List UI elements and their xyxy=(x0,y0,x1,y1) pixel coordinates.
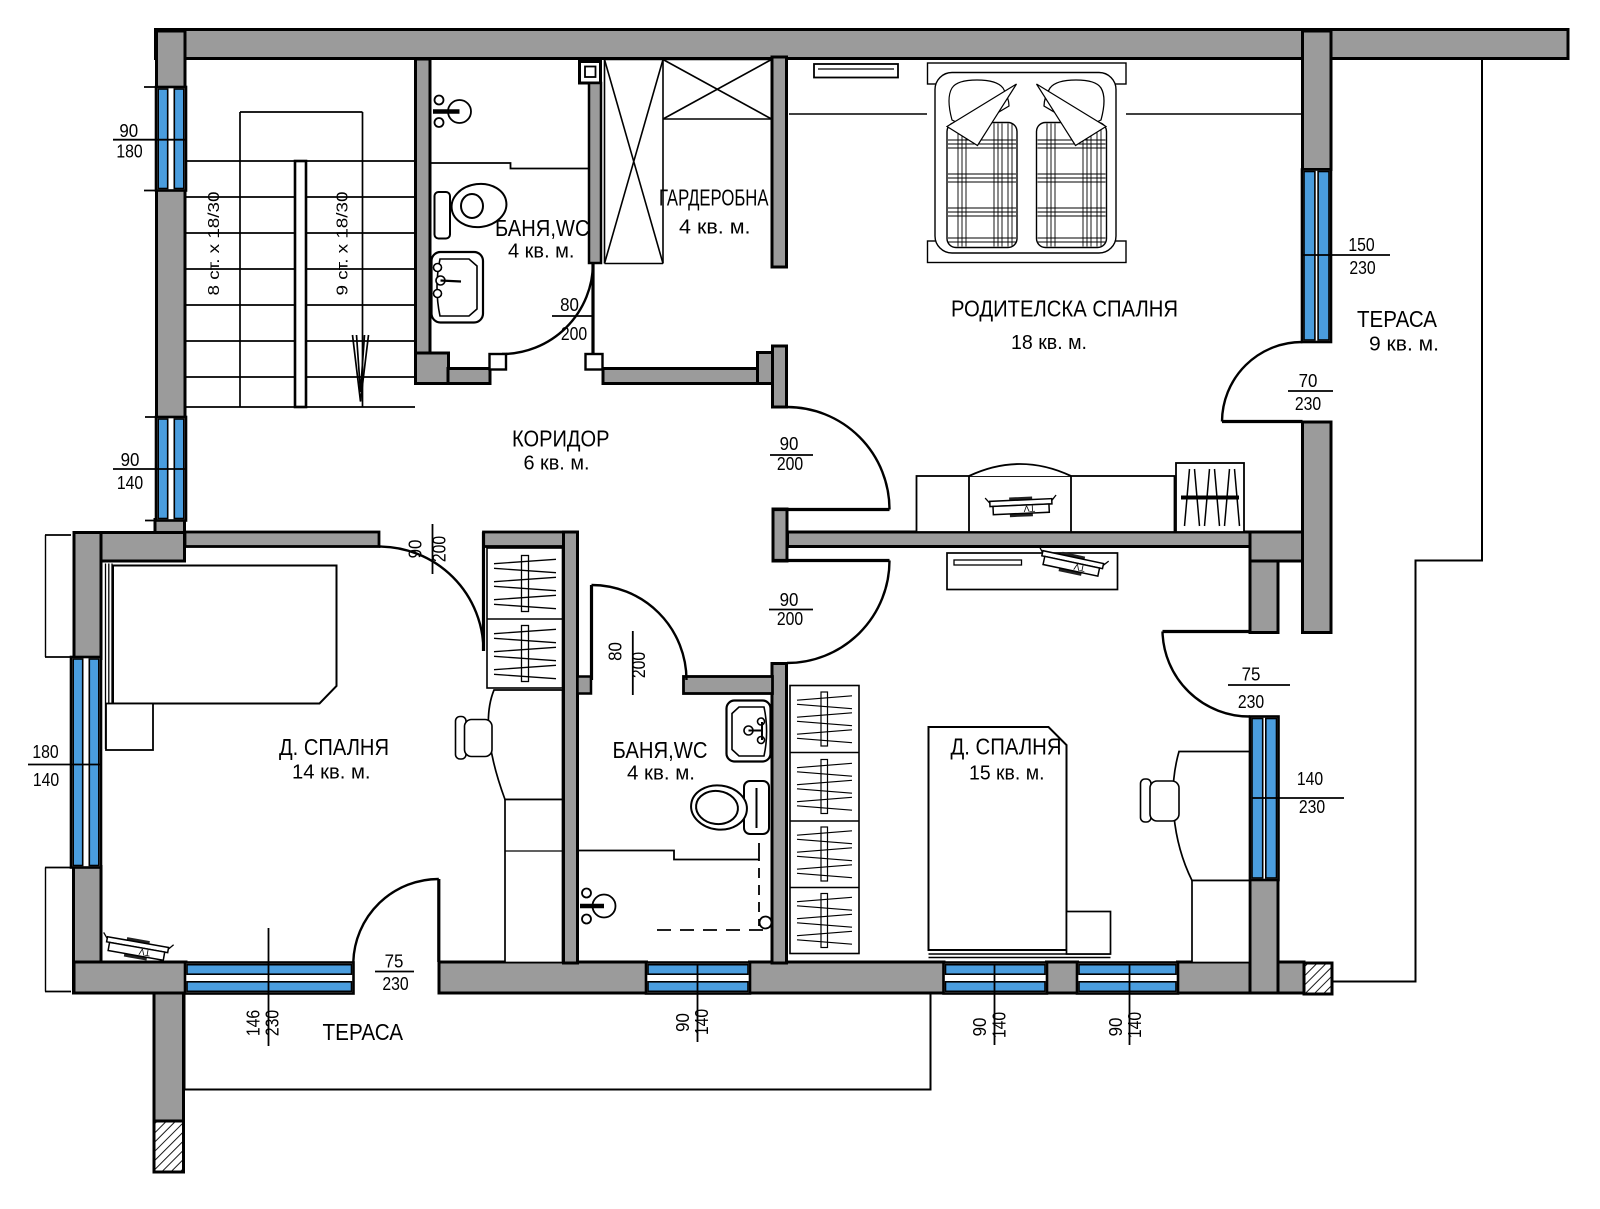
svg-text:140: 140 xyxy=(117,473,143,493)
svg-text:9 ст. x 18/30: 9 ст. x 18/30 xyxy=(335,191,352,295)
svg-text:4 кв. м.: 4 кв. м. xyxy=(627,763,695,785)
svg-text:90: 90 xyxy=(121,450,140,470)
svg-text:15 кв. м.: 15 кв. м. xyxy=(969,763,1045,785)
svg-text:ТЕРАСА: ТЕРАСА xyxy=(323,1019,404,1045)
svg-text:200: 200 xyxy=(629,652,649,678)
svg-text:90: 90 xyxy=(970,1018,990,1037)
svg-text:6 кв. м.: 6 кв. м. xyxy=(524,453,590,475)
svg-text:90: 90 xyxy=(673,1013,693,1032)
svg-text:ТЕРАСА: ТЕРАСА xyxy=(1357,306,1438,332)
svg-text:ГАРДЕРОБНА: ГАРДЕРОБНА xyxy=(659,185,769,211)
svg-text:90: 90 xyxy=(1106,1018,1126,1037)
svg-text:80: 80 xyxy=(606,642,626,661)
svg-text:TV: TV xyxy=(138,946,151,958)
svg-text:140: 140 xyxy=(990,1012,1010,1038)
svg-text:4 кв. м.: 4 кв. м. xyxy=(508,241,575,263)
svg-text:90: 90 xyxy=(119,121,138,141)
svg-text:75: 75 xyxy=(385,952,404,972)
svg-text:200: 200 xyxy=(777,609,803,629)
svg-text:230: 230 xyxy=(1295,394,1321,414)
svg-text:КОРИДОР: КОРИДОР xyxy=(512,426,610,452)
svg-text:БАНЯ,WC: БАНЯ,WC xyxy=(613,737,708,763)
svg-text:230: 230 xyxy=(1299,797,1325,817)
svg-text:70: 70 xyxy=(1299,371,1318,391)
svg-text:230: 230 xyxy=(1238,692,1264,712)
svg-text:4 кв. м.: 4 кв. м. xyxy=(679,217,751,239)
svg-text:80: 80 xyxy=(560,295,579,315)
svg-text:150: 150 xyxy=(1348,235,1374,255)
svg-text:8 ст. x 18/30: 8 ст. x 18/30 xyxy=(206,191,223,295)
svg-text:БАНЯ,WC: БАНЯ,WC xyxy=(495,215,590,241)
svg-text:140: 140 xyxy=(33,770,59,790)
svg-text:90: 90 xyxy=(780,434,799,454)
svg-text:Д. СПАЛНЯ: Д. СПАЛНЯ xyxy=(279,734,389,760)
svg-text:180: 180 xyxy=(32,742,58,762)
svg-text:18 кв. м.: 18 кв. м. xyxy=(1011,332,1087,354)
svg-text:РОДИТЕЛСКА СПАЛНЯ: РОДИТЕЛСКА СПАЛНЯ xyxy=(951,296,1178,322)
svg-text:200: 200 xyxy=(777,454,803,474)
svg-text:180: 180 xyxy=(116,142,142,162)
svg-text:200: 200 xyxy=(561,324,587,344)
svg-text:140: 140 xyxy=(1125,1012,1145,1038)
svg-text:Д. СПАЛНЯ: Д. СПАЛНЯ xyxy=(951,734,1062,760)
svg-text:200: 200 xyxy=(430,536,450,562)
svg-text:14 кв. м.: 14 кв. м. xyxy=(292,762,371,784)
svg-text:9 кв. м.: 9 кв. м. xyxy=(1369,334,1439,356)
svg-text:230: 230 xyxy=(382,974,408,994)
svg-text:230: 230 xyxy=(1349,258,1375,278)
svg-text:140: 140 xyxy=(692,1009,712,1035)
svg-text:90: 90 xyxy=(780,590,799,610)
svg-text:230: 230 xyxy=(263,1010,283,1036)
svg-text:140: 140 xyxy=(1297,769,1323,789)
svg-text:75: 75 xyxy=(1242,665,1261,685)
svg-text:146: 146 xyxy=(244,1010,264,1036)
svg-text:90: 90 xyxy=(406,540,426,559)
svg-text:TV: TV xyxy=(1023,503,1035,513)
